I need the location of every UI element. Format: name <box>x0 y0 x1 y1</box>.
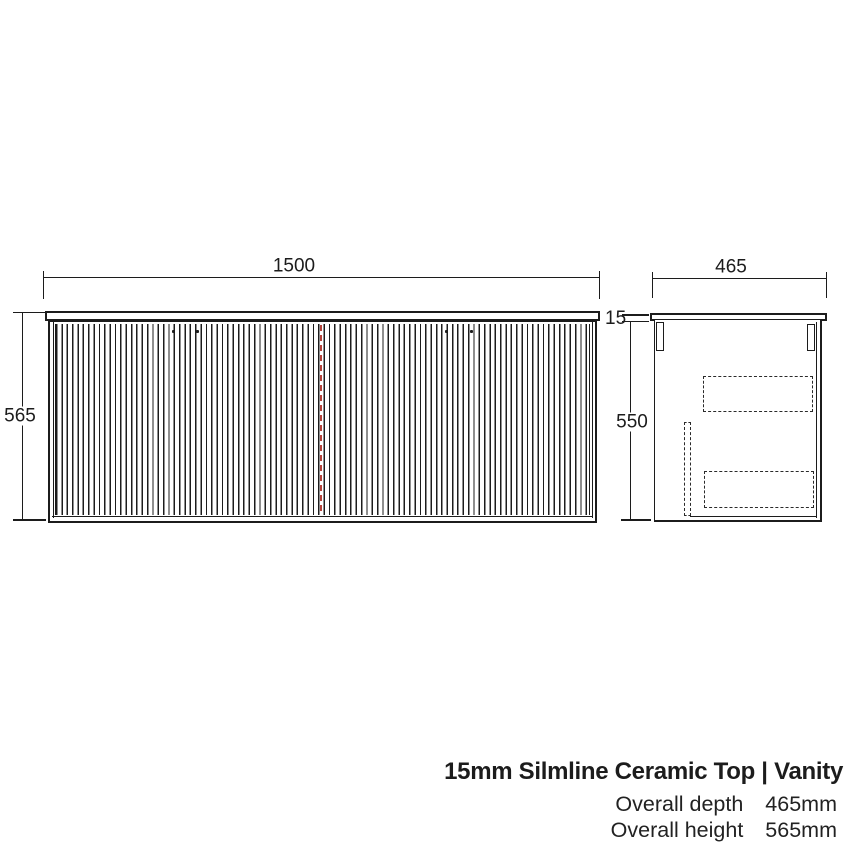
side-top-thickness-label: 15 <box>602 309 629 328</box>
front-width-dim-label: 1500 <box>270 257 318 276</box>
side-depth-dim-line <box>652 278 827 280</box>
door-split-line <box>320 325 322 514</box>
door-bumper-dot <box>470 330 473 333</box>
fluted-door-panels <box>55 324 590 515</box>
spec-value-depth: 465mm <box>765 792 837 817</box>
spec-label-depth: Overall depth <box>611 792 744 817</box>
hidden-drawer-upper <box>703 376 813 412</box>
door-bumper-dot <box>196 330 199 333</box>
front-height-dim-label: 565 <box>1 407 39 426</box>
front-width-dim-tick-right <box>599 271 601 299</box>
door-bumper-dot <box>445 330 448 333</box>
front-width-dim-line <box>43 277 600 279</box>
side-back-panel-line <box>816 322 817 518</box>
front-inner-right-line <box>592 322 593 518</box>
front-inner-bottom-line <box>52 516 593 517</box>
side-height-dim-tick-bottom <box>621 519 651 521</box>
hidden-door-edge <box>684 422 691 516</box>
front-height-dim-tick-top <box>13 312 46 314</box>
front-height-dim-tick-bottom <box>13 519 46 521</box>
mounting-bracket-front <box>656 322 664 351</box>
door-bumper-dot <box>172 330 175 333</box>
side-depth-dim-tick-left <box>652 272 654 298</box>
product-title: 15mm Silmline Ceramic Top | Vanity <box>444 758 843 786</box>
spec-table: Overall depth 465mm Overall height 565mm <box>444 792 843 843</box>
spec-label-height: Overall height <box>611 818 744 843</box>
side-depth-dim-label: 465 <box>712 258 750 277</box>
front-inner-left-line <box>53 322 54 518</box>
hidden-drawer-lower <box>704 471 814 508</box>
side-depth-dim-tick-right <box>826 272 828 298</box>
side-bottom-panel-line <box>690 516 817 517</box>
spec-footer: 15mm Silmline Ceramic Top | Vanity Overa… <box>444 758 843 843</box>
side-height-dim-label: 550 <box>613 413 651 432</box>
side-top-thickness-tick-lower <box>622 321 649 323</box>
vanity-spec-sheet: 1500 565 465 15 <box>0 0 860 860</box>
spec-value-height: 565mm <box>765 818 837 843</box>
side-top-thickness-tick-upper <box>622 314 649 316</box>
front-width-dim-tick-left <box>43 271 45 299</box>
mounting-bracket-back <box>807 324 815 351</box>
